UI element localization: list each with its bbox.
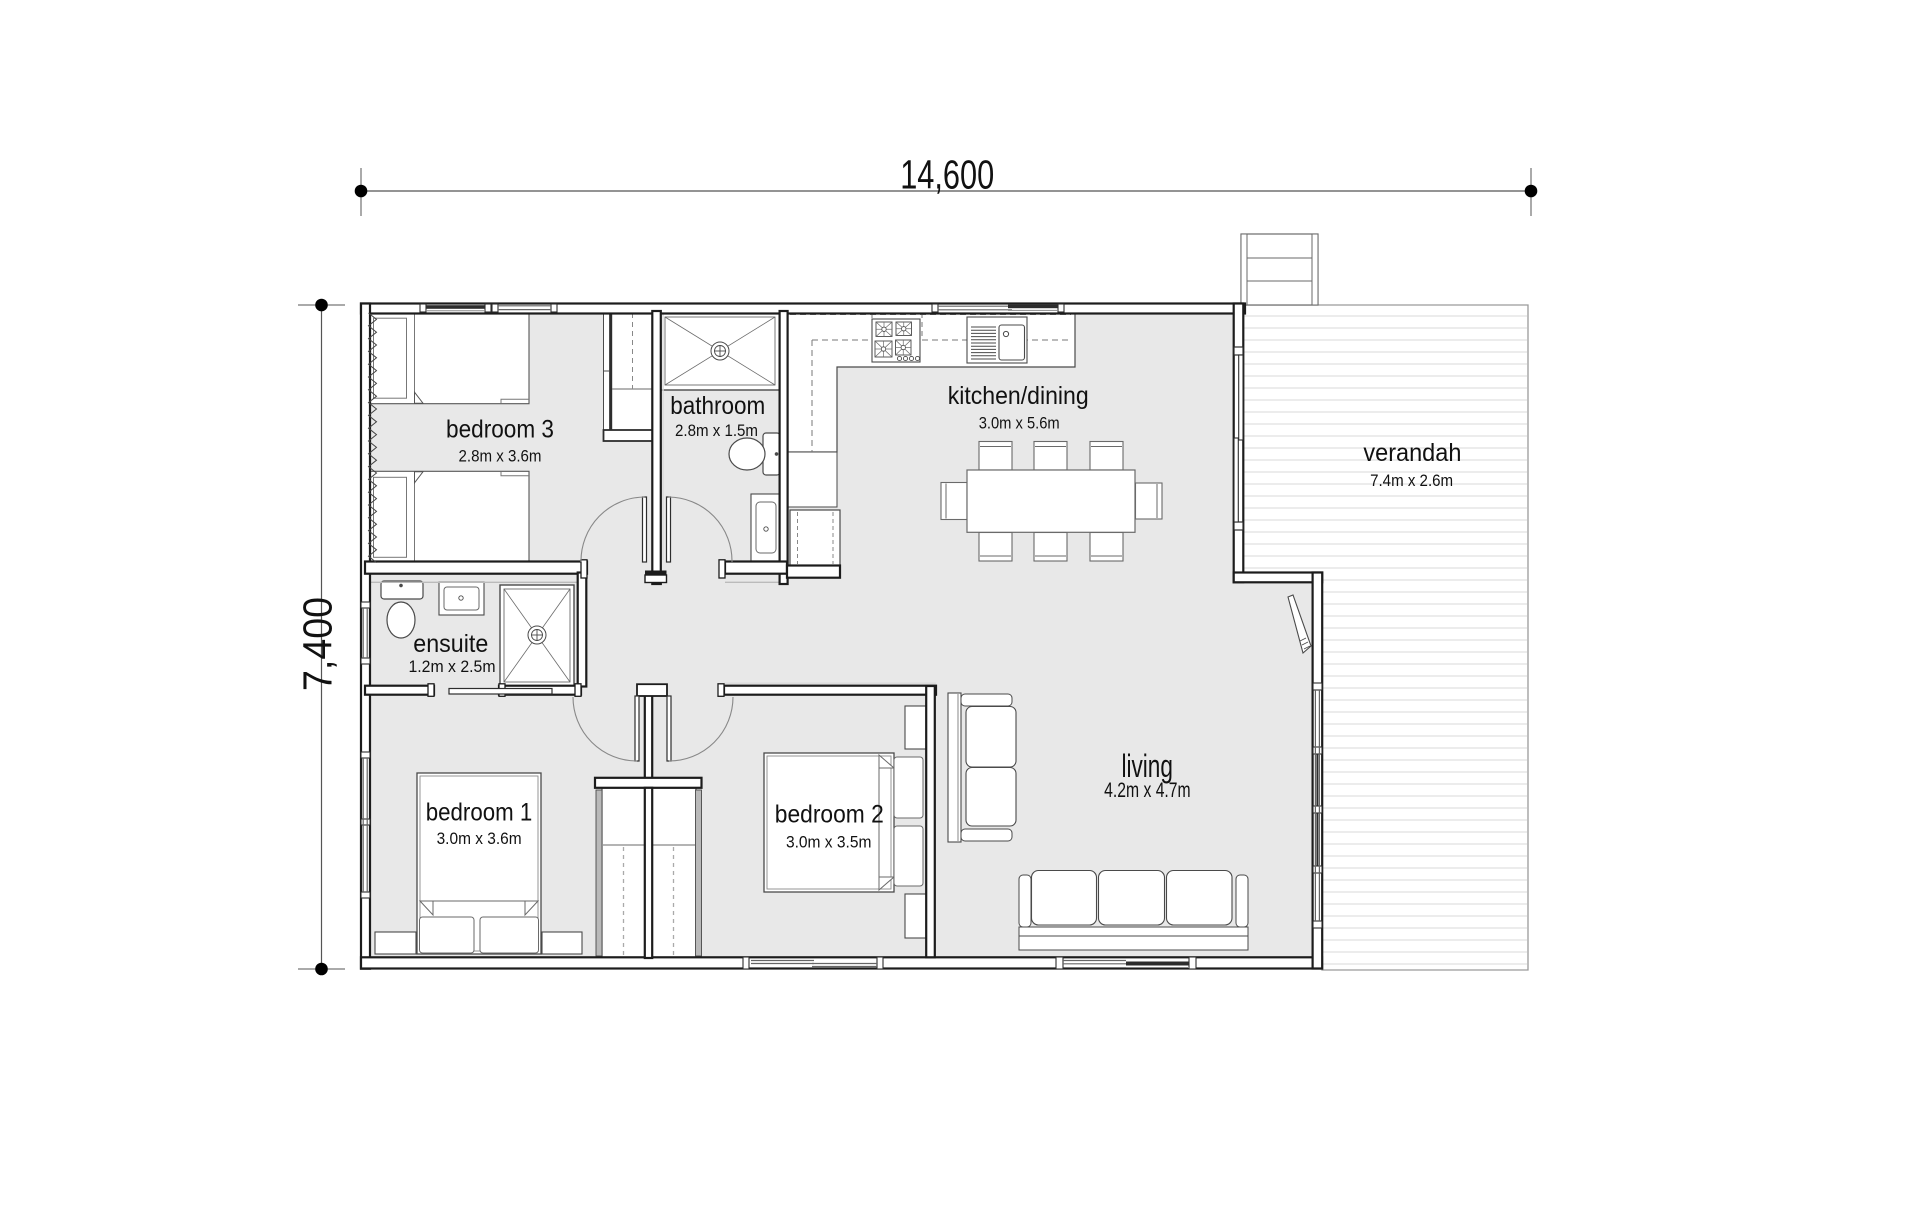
svg-text:14,600: 14,600 (900, 152, 994, 198)
svg-text:3.0m x 3.5m: 3.0m x 3.5m (786, 833, 872, 851)
svg-text:bathroom: bathroom (670, 392, 765, 420)
svg-text:bedroom 1: bedroom 1 (426, 798, 533, 826)
svg-text:7,400: 7,400 (295, 597, 341, 691)
svg-text:2.8m x 1.5m: 2.8m x 1.5m (675, 422, 758, 440)
svg-text:3.0m x 3.6m: 3.0m x 3.6m (437, 830, 522, 848)
svg-text:7.4m x 2.6m: 7.4m x 2.6m (1370, 472, 1453, 490)
svg-text:verandah: verandah (1363, 439, 1461, 467)
svg-text:1.2m x 2.5m: 1.2m x 2.5m (409, 658, 496, 676)
svg-text:3.0m x 5.6m: 3.0m x 5.6m (979, 414, 1060, 432)
svg-text:bedroom 2: bedroom 2 (775, 801, 884, 829)
svg-text:kitchen/dining: kitchen/dining (948, 382, 1089, 410)
svg-text:2.8m x 3.6m: 2.8m x 3.6m (459, 447, 542, 465)
svg-text:ensuite: ensuite (413, 630, 488, 658)
svg-text:4.2m x 4.7m: 4.2m x 4.7m (1104, 779, 1191, 802)
svg-text:bedroom 3: bedroom 3 (446, 416, 554, 444)
